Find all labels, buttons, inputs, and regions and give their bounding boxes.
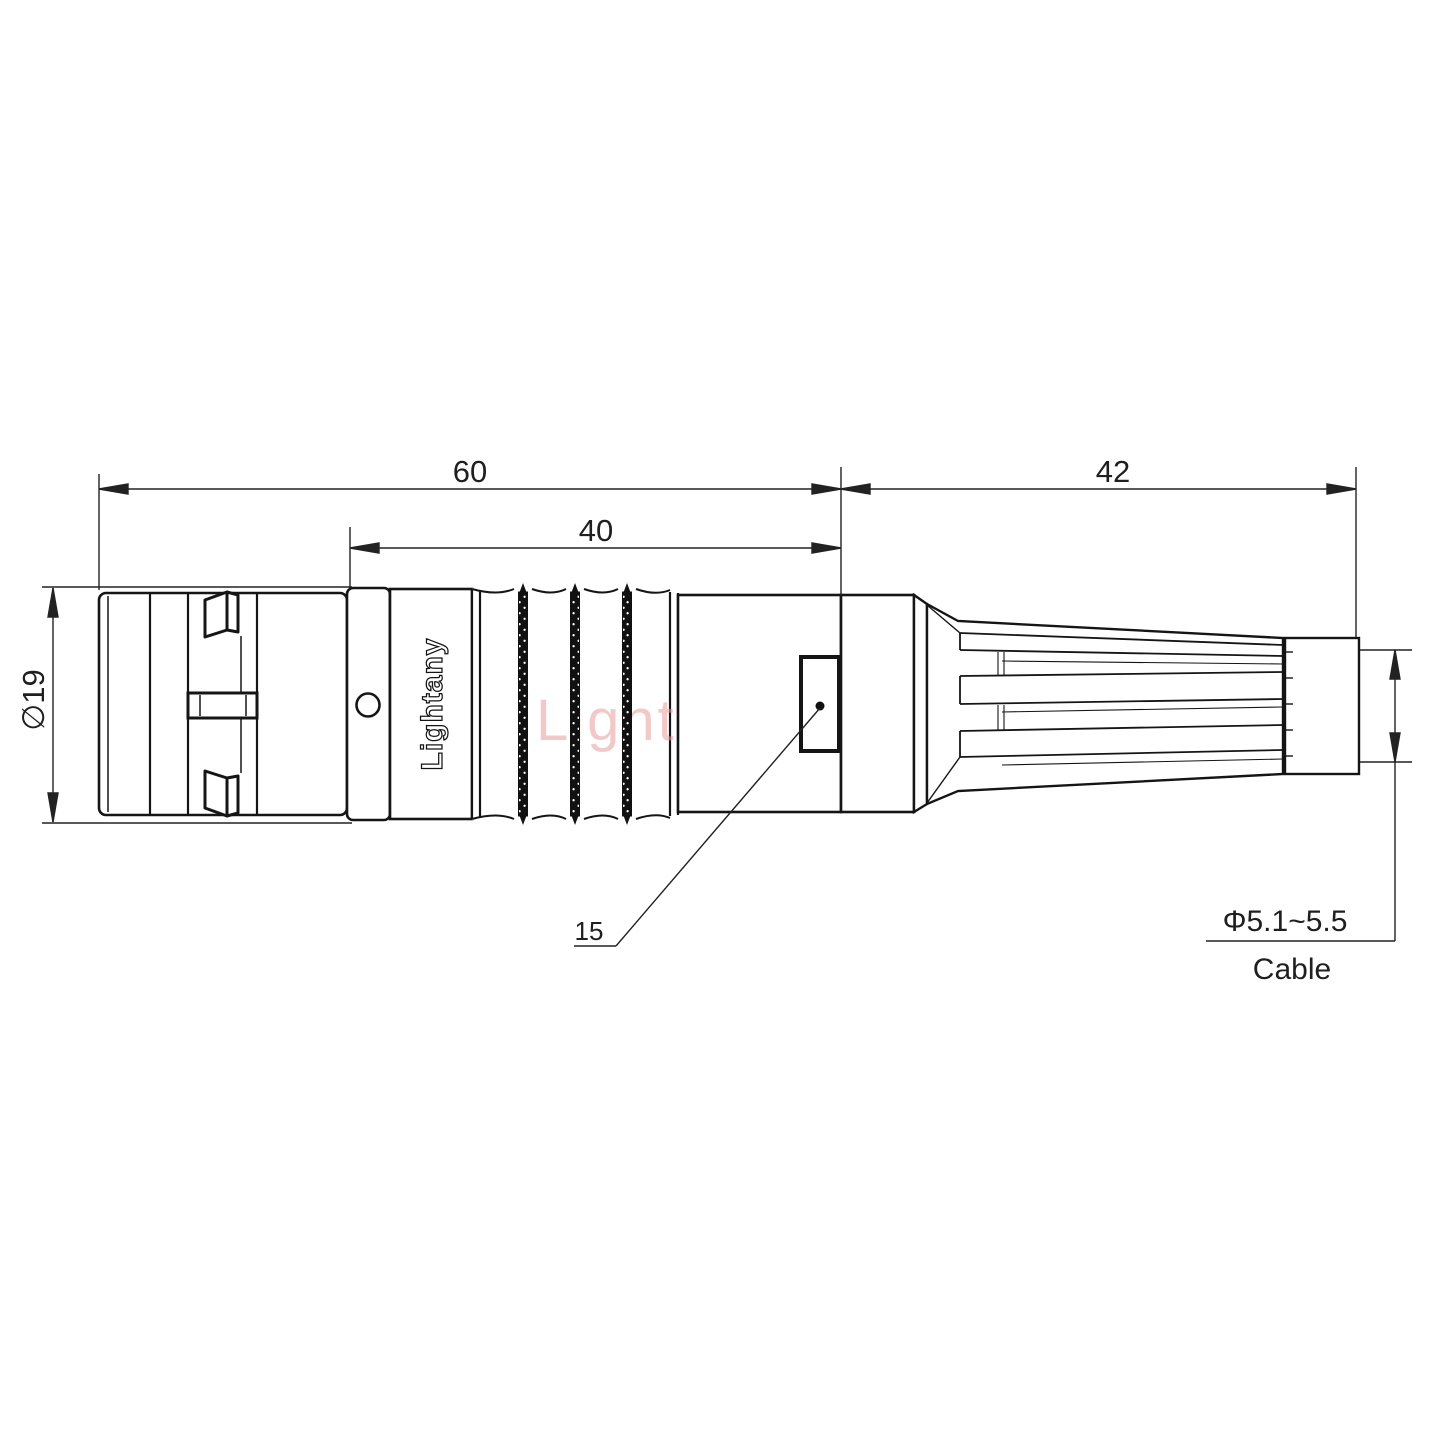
- cable-diameter-label: Φ5.1~5.5: [1223, 905, 1348, 938]
- arrow-60-left: [99, 484, 128, 494]
- arrow-dia19-bottom: [48, 793, 58, 822]
- leader-dot: [816, 702, 825, 711]
- arrow-42-right: [1327, 484, 1356, 494]
- boot-shoulder-band: [914, 595, 927, 812]
- knurl-band: [519, 583, 528, 825]
- cable-entry-tip: [1285, 638, 1359, 774]
- arrow-40-left: [350, 543, 379, 553]
- arrow-cable-bottom: [1390, 733, 1400, 762]
- vent-hole: [357, 694, 380, 717]
- arrow-40-right: [812, 543, 841, 553]
- knurl-band: [623, 583, 632, 825]
- arrow-60-right: [812, 484, 841, 494]
- arrow-42-left: [841, 484, 870, 494]
- arrow-cable-top: [1390, 650, 1400, 679]
- dim-diameter-label: ∅19: [16, 669, 51, 731]
- dim-42-label: 42: [1096, 454, 1130, 489]
- technical-drawing-page: Lightany Lightany: [0, 0, 1440, 1440]
- detail-15-label: 15: [575, 916, 604, 946]
- brand-engraving-text: Lightany: [416, 638, 449, 771]
- connector-drawing: Lightany Lightany: [0, 0, 1440, 1440]
- arrow-dia19-top: [48, 588, 58, 617]
- dim-40-label: 40: [579, 513, 613, 548]
- cable-caption-label: Cable: [1253, 953, 1331, 986]
- dim-60-label: 60: [453, 454, 487, 489]
- connector-rear-group: [678, 595, 1359, 812]
- bayonet-cutout-bottom: [205, 771, 238, 816]
- back-nut: [841, 595, 914, 812]
- bayonet-cutout-top: [205, 592, 238, 637]
- knurl-band: [571, 583, 580, 825]
